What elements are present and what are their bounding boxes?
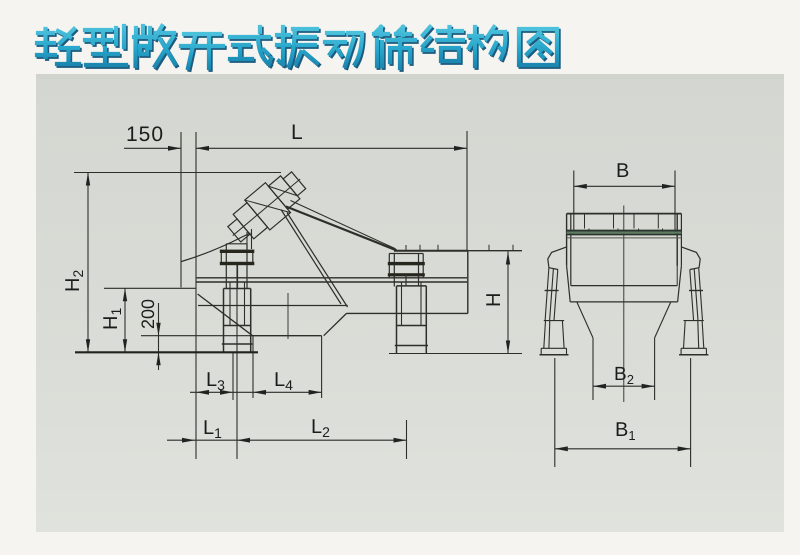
svg-text:B: B — [616, 160, 629, 182]
svg-text:200: 200 — [138, 299, 158, 329]
svg-text:150: 150 — [126, 123, 164, 146]
svg-text:L: L — [291, 121, 303, 144]
svg-text:H: H — [483, 293, 505, 307]
